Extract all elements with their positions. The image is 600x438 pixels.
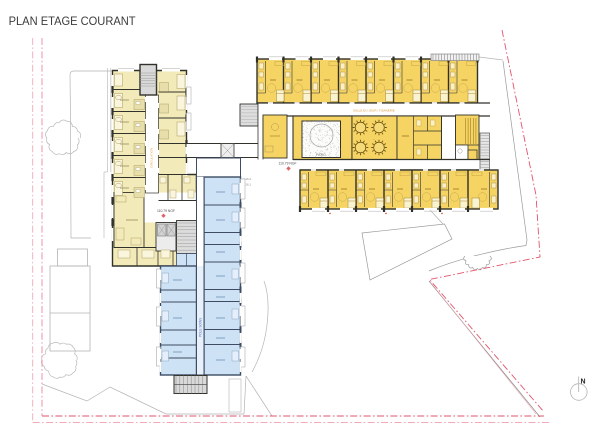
svg-text:PLAN ETAGE COURANT: PLAN ETAGE COURANT [9,14,137,28]
svg-text:POLE SOINS: POLE SOINS [199,318,203,337]
svg-text:CIRCULATION: CIRCULATION [150,148,154,168]
svg-text:N: N [581,379,586,386]
svg-text:PATIO: PATIO [316,153,326,157]
svg-text:SALLE DU JOUR / TISANERIE: SALLE DU JOUR / TISANERIE [353,109,395,113]
svg-text:--: -- [373,138,375,141]
svg-text:110.79 NGF: 110.79 NGF [157,209,175,213]
svg-text:110.79 NGF: 110.79 NGF [279,162,297,166]
